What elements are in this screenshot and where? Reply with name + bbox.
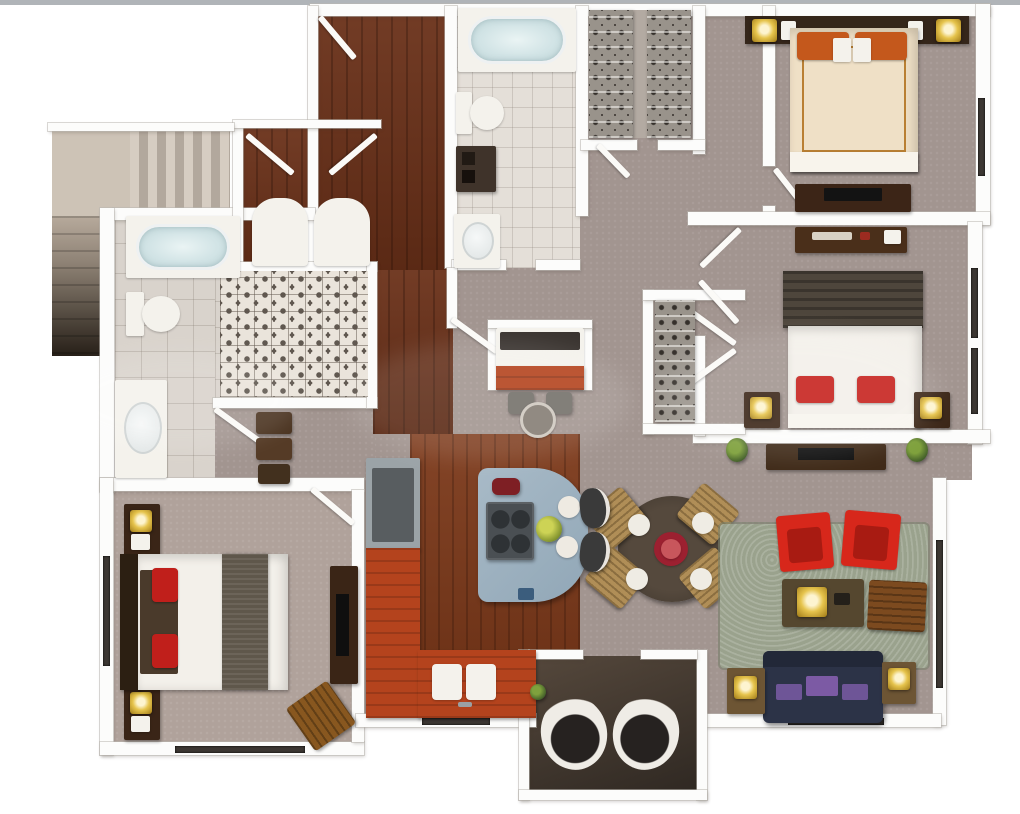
dining-plate-1 bbox=[628, 514, 650, 536]
armchair-red-right-seat bbox=[853, 525, 890, 562]
bed3-headboard bbox=[120, 554, 140, 690]
window-bedroom3-bottom bbox=[175, 746, 305, 753]
bed1-tv bbox=[824, 188, 882, 201]
wardrobe-left bbox=[252, 198, 308, 266]
window-bedroom2-right-a bbox=[971, 268, 978, 338]
wall-balcony-right bbox=[697, 650, 707, 800]
storage-basket-2 bbox=[256, 438, 292, 460]
kitchen-island-plant bbox=[536, 516, 562, 542]
armchair-red-left-seat bbox=[787, 527, 824, 564]
bed2-plant-right bbox=[906, 438, 928, 462]
bed3-runner bbox=[222, 554, 268, 690]
window-kitchen bbox=[422, 718, 490, 725]
bed3-lamp-top bbox=[130, 510, 152, 532]
window-bedroom2-right-b bbox=[971, 348, 978, 414]
closet-aisle bbox=[633, 10, 647, 138]
wall-closet2-left bbox=[643, 290, 653, 434]
wall-dressing-top bbox=[233, 120, 381, 128]
kitchen-appliance bbox=[372, 468, 414, 542]
stairs-upper-treads bbox=[130, 131, 230, 216]
bath2-cabinet-item-b bbox=[462, 170, 475, 183]
watermark-blob-2 bbox=[350, 340, 630, 460]
bed3-lamp-bottom bbox=[130, 692, 152, 714]
kitchen-faucet bbox=[458, 702, 472, 707]
window-bedroom3-left bbox=[103, 556, 110, 666]
kitchen-sink-right bbox=[466, 664, 496, 700]
wall-balcony-top-b bbox=[641, 650, 697, 659]
storage-basket-3 bbox=[258, 464, 290, 484]
dining-plate-2 bbox=[692, 512, 714, 534]
sofa-cushion-left bbox=[776, 684, 802, 700]
wall-stairs-top bbox=[48, 123, 234, 131]
bed1-foot-throw bbox=[790, 152, 918, 172]
coffee-table-decor bbox=[834, 593, 850, 605]
bed3-pillow-bottom bbox=[152, 634, 178, 668]
closet-rack-right bbox=[647, 10, 691, 138]
bedroom2-dresser-decor-red bbox=[860, 232, 870, 240]
wall-bedroom1-bottom bbox=[688, 212, 990, 225]
watermark-blob-1 bbox=[60, 350, 300, 450]
bed3-pad-top bbox=[131, 534, 150, 550]
floorplan-render bbox=[0, 0, 1020, 814]
wall-nook-top bbox=[488, 320, 592, 328]
wall-closet2-top bbox=[643, 290, 745, 300]
kitchen-cooktop bbox=[486, 502, 534, 560]
wall-closet-top-bottom-a bbox=[581, 140, 637, 150]
living-bench bbox=[867, 580, 928, 633]
wall-bedroom3-top bbox=[100, 478, 364, 491]
bed1-cushion-b bbox=[853, 38, 871, 62]
bedroom2-dresser-decor bbox=[812, 232, 852, 240]
watermark-blob-3 bbox=[660, 330, 940, 460]
wall-bath1-left bbox=[100, 208, 114, 492]
bath2-cabinet-item-a bbox=[462, 152, 475, 165]
bathtub-2-water bbox=[468, 16, 566, 64]
bed2-canopy bbox=[783, 271, 923, 328]
bed3-tv bbox=[336, 594, 349, 656]
kitchen-counter-left bbox=[366, 548, 420, 718]
bed1-lamp-left bbox=[752, 19, 777, 42]
kitchen-wine-decor bbox=[492, 478, 520, 495]
bed1-cushion-a bbox=[833, 38, 851, 62]
bed3-pad-bottom bbox=[131, 716, 150, 732]
kitchen-plate-a bbox=[558, 496, 580, 518]
toilet-1-bowl bbox=[142, 296, 180, 332]
sofa-cushion-center bbox=[806, 676, 838, 696]
window-bedroom1-right bbox=[978, 98, 985, 176]
bath2-basin bbox=[462, 222, 494, 260]
balcony-plant bbox=[530, 684, 546, 700]
kitchen-blue-item bbox=[518, 588, 534, 600]
sofa-back bbox=[763, 651, 883, 667]
dining-centerpiece-inner bbox=[661, 539, 681, 559]
dining-plate-4 bbox=[690, 568, 712, 590]
wall-closet-top-right bbox=[693, 6, 705, 154]
bed1-lamp-right bbox=[936, 19, 961, 42]
wall-closet-top-bottom-b bbox=[658, 140, 705, 150]
side-lamp-right bbox=[888, 668, 910, 690]
bedroom2-stool bbox=[884, 230, 901, 244]
bathtub-1-water bbox=[136, 224, 230, 270]
kitchen-plate-b bbox=[556, 536, 578, 558]
toilet-2-bowl bbox=[470, 96, 504, 130]
wardrobe-right bbox=[314, 198, 370, 266]
side-lamp-left bbox=[734, 676, 757, 699]
wall-bath2-right bbox=[576, 6, 588, 216]
wall-balcony-bottom bbox=[519, 790, 707, 800]
window-living-right bbox=[936, 540, 943, 688]
bed3-pillow-top bbox=[152, 568, 178, 602]
sofa-cushion-right bbox=[842, 684, 868, 700]
wall-balcony-top-a bbox=[529, 650, 583, 659]
kitchen-sink-left bbox=[432, 664, 462, 700]
wall-bath2-bottom-b bbox=[536, 260, 580, 270]
dining-plate-3 bbox=[626, 568, 648, 590]
stairs-landing bbox=[52, 131, 132, 216]
coffee-table-gold-box bbox=[797, 587, 827, 617]
closet-rack-left bbox=[589, 10, 633, 138]
